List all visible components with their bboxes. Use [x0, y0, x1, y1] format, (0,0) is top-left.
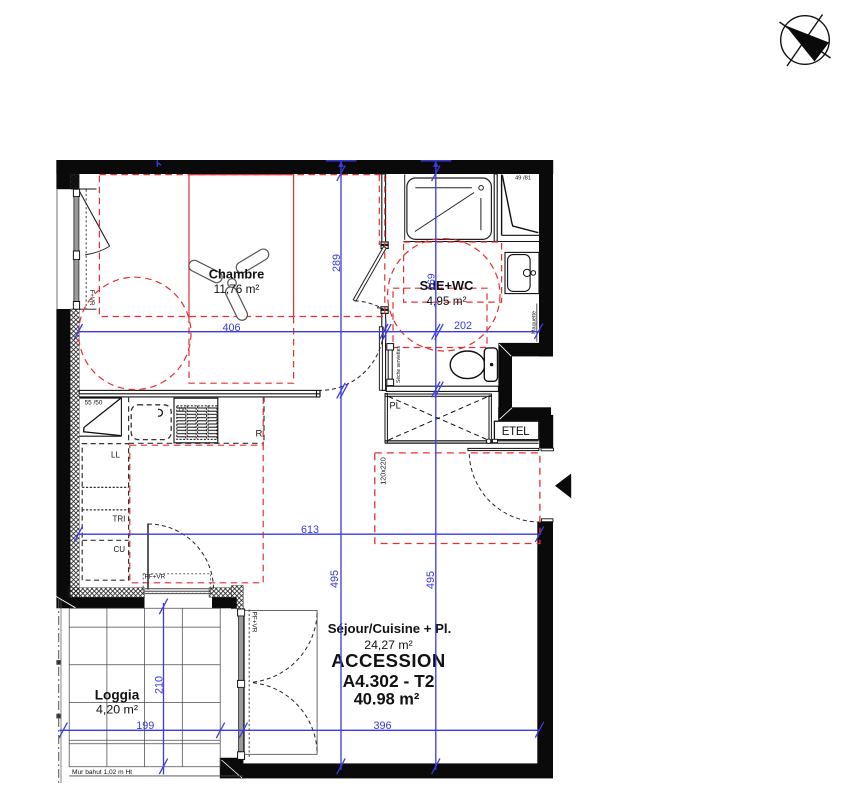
svg-text:210: 210 [154, 676, 166, 694]
svg-text:11,76 m²: 11,76 m² [214, 282, 260, 296]
svg-text:4,95 m²: 4,95 m² [427, 294, 467, 308]
svg-text:120x220: 120x220 [379, 457, 388, 485]
svg-text:406: 406 [222, 322, 240, 334]
svg-text:49 /81: 49 /81 [515, 176, 531, 182]
svg-text:289: 289 [331, 254, 343, 272]
svg-text:495: 495 [329, 570, 341, 588]
svg-text:ETEL: ETEL [502, 426, 530, 438]
svg-text:CU: CU [114, 545, 126, 554]
svg-text:396: 396 [373, 720, 391, 732]
svg-text:495: 495 [425, 571, 437, 589]
svg-text:169: 169 [427, 273, 438, 290]
svg-text:4,20 m²: 4,20 m² [96, 703, 138, 717]
svg-text:R: R [256, 429, 263, 440]
svg-text:Loggia: Loggia [95, 688, 140, 703]
svg-text:PF+VR: PF+VR [145, 574, 166, 581]
svg-text:Chambre: Chambre [209, 267, 264, 282]
svg-text:Mur bahut 1,02 m Ht: Mur bahut 1,02 m Ht [72, 769, 132, 776]
svg-text:202: 202 [454, 320, 472, 332]
svg-text:55 /50: 55 /50 [85, 400, 103, 407]
svg-text:Maquette: Maquette [532, 311, 538, 334]
svg-text:TRI: TRI [113, 515, 126, 524]
svg-text:199: 199 [136, 720, 154, 732]
svg-text:PF+VR: PF+VR [251, 612, 258, 633]
svg-text:PL: PL [390, 401, 401, 411]
svg-text:LV: LV [179, 407, 186, 413]
svg-text:Séjour/Cuisine + Pl.: Séjour/Cuisine + Pl. [328, 621, 452, 636]
svg-text:40.98 m²: 40.98 m² [354, 690, 420, 708]
svg-text:A4.302 - T2: A4.302 - T2 [343, 671, 435, 691]
svg-text:ACCESSION: ACCESSION [331, 650, 446, 671]
svg-text:Sèche serviettes: Sèche serviettes [396, 346, 402, 383]
svg-text:613: 613 [301, 524, 319, 536]
svg-text:LL: LL [111, 451, 120, 460]
